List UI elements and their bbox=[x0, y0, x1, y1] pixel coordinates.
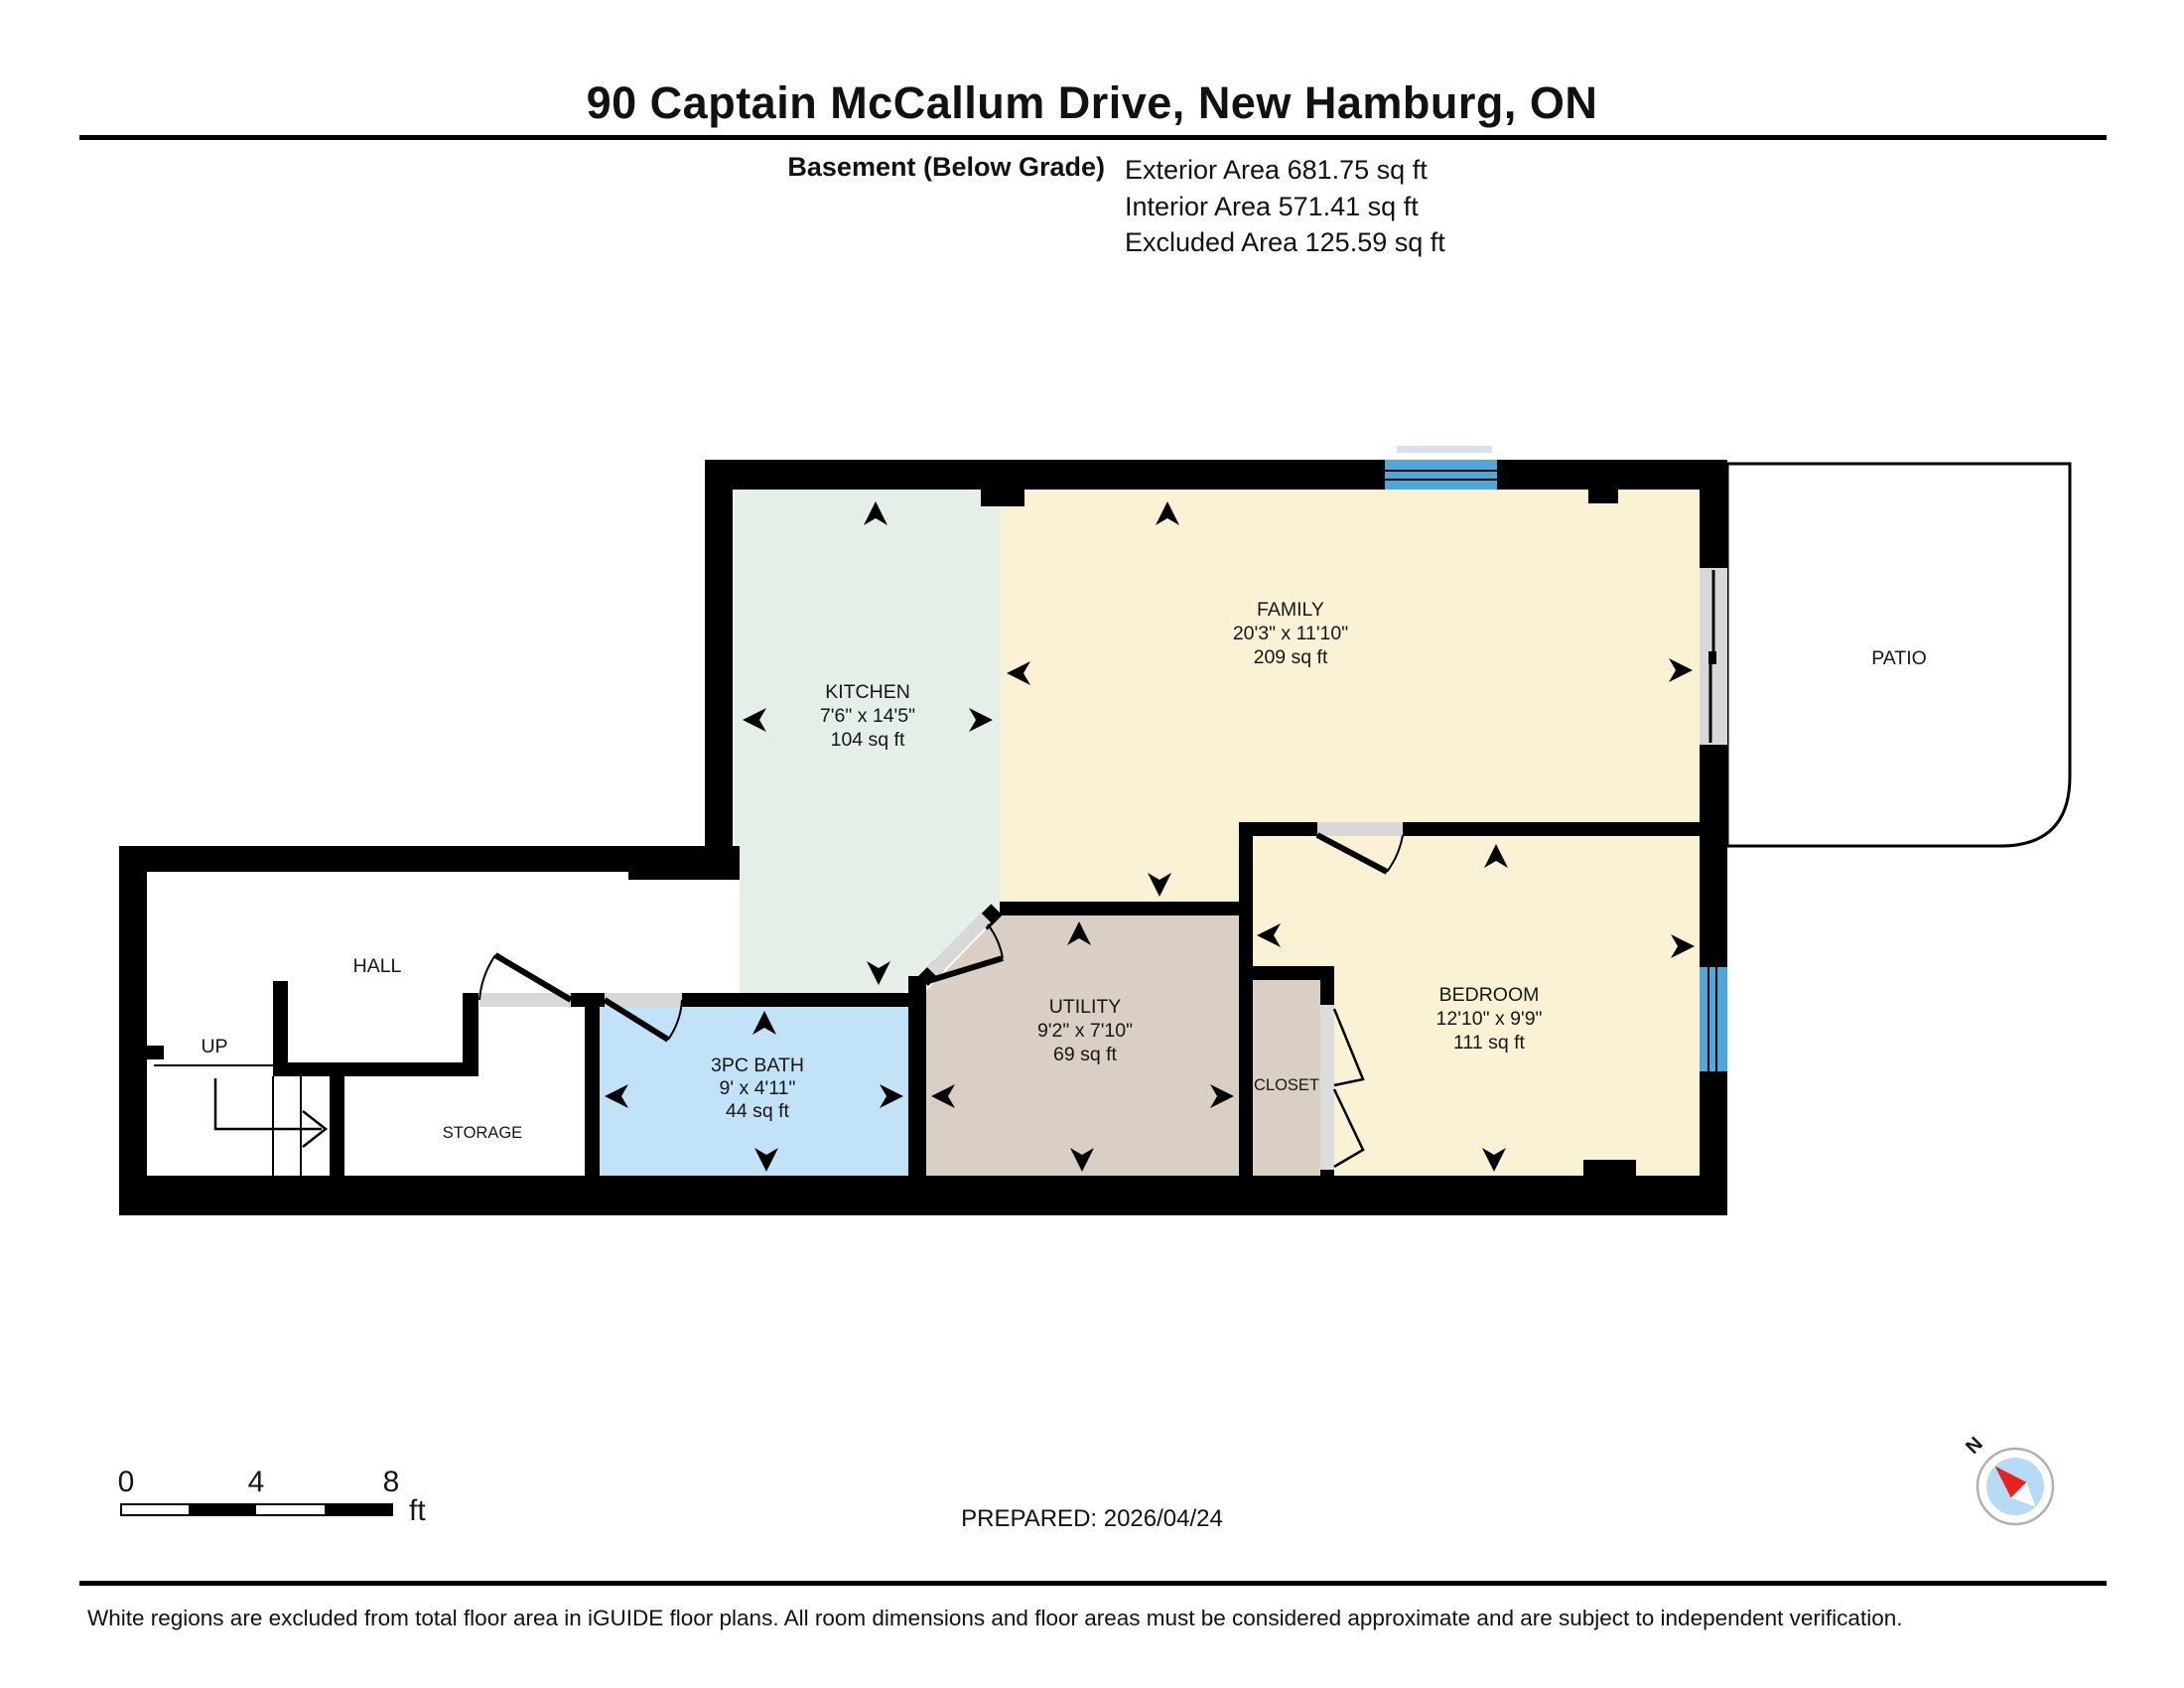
wall-notch bbox=[1583, 1160, 1636, 1176]
family-label: FAMILY bbox=[1257, 599, 1324, 621]
wall-segment bbox=[273, 1062, 478, 1076]
wall-segment bbox=[1320, 1170, 1334, 1178]
wall-segment bbox=[585, 1007, 600, 1176]
utility-label: UTILITY bbox=[1049, 996, 1122, 1018]
patio-label: PATIO bbox=[1871, 647, 1927, 669]
wall-segment bbox=[1239, 822, 1253, 1176]
closet-label: CLOSET bbox=[1254, 1076, 1319, 1094]
family-dimensions: 20'3" x 11'10" bbox=[1233, 623, 1348, 644]
kitchen-area: 104 sq ft bbox=[831, 729, 905, 751]
kitchen-label: KITCHEN bbox=[825, 681, 910, 703]
scale-tick-0: 0 bbox=[118, 1466, 135, 1498]
bath-area: 44 sq ft bbox=[726, 1100, 790, 1122]
window-top-icon bbox=[1385, 460, 1497, 490]
window-bedroom-icon bbox=[1700, 967, 1727, 1071]
closet-bifold-opening bbox=[1320, 1005, 1334, 1170]
bedroom-door-opening bbox=[1317, 822, 1403, 836]
stair-direction-line bbox=[215, 1078, 322, 1129]
wall-segment bbox=[1320, 966, 1334, 1005]
slider-latch bbox=[1708, 651, 1716, 664]
wall-segment bbox=[571, 993, 605, 1007]
wall-segment bbox=[1000, 902, 1239, 915]
stair-treads bbox=[273, 1076, 301, 1176]
kitchen-dimensions: 7'6" x 14'5" bbox=[820, 705, 915, 727]
window-sill bbox=[1397, 446, 1492, 453]
hall-label: HALL bbox=[353, 955, 402, 977]
wall-segment bbox=[1253, 966, 1320, 980]
utility-area: 69 sq ft bbox=[1053, 1044, 1118, 1065]
bedroom-label: BEDROOM bbox=[1439, 984, 1540, 1006]
scale-tick-4: 4 bbox=[248, 1466, 265, 1498]
wall-notch bbox=[1588, 490, 1618, 503]
compass-north-label: N bbox=[1962, 1433, 1987, 1459]
bedroom-dimensions: 12'10" x 9'9" bbox=[1436, 1008, 1543, 1030]
wall-segment bbox=[682, 993, 926, 1007]
wall-segment bbox=[628, 868, 740, 880]
wall-segment bbox=[705, 460, 1727, 490]
wall-segment bbox=[119, 846, 147, 1215]
footer-disclaimer: White regions are excluded from total fl… bbox=[87, 1606, 2073, 1631]
family-area: 209 sq ft bbox=[1254, 646, 1328, 668]
sliding-door-icon bbox=[1700, 568, 1727, 745]
wall-segment bbox=[1403, 822, 1700, 836]
wall-segment bbox=[908, 976, 926, 1176]
wall-segment bbox=[147, 1046, 164, 1059]
storage-label: STORAGE bbox=[443, 1124, 522, 1142]
wall-segment bbox=[119, 1176, 1727, 1215]
wall-segment bbox=[330, 1076, 344, 1176]
wall-segment bbox=[705, 460, 733, 874]
floor-plan-drawing: KITCHEN 7'6" x 14'5" 104 sq ft FAMILY 20… bbox=[0, 0, 2184, 1688]
bath-dimensions: 9' x 4'11" bbox=[720, 1077, 796, 1099]
prepared-date: PREPARED: 2026/04/24 bbox=[0, 1505, 2184, 1533]
scale-tick-8: 8 bbox=[383, 1466, 400, 1498]
up-label: UP bbox=[201, 1036, 227, 1057]
bath-label: 3PC BATH bbox=[711, 1055, 804, 1076]
wall-notch bbox=[981, 490, 1024, 506]
floor-plan-page: 90 Captain McCallum Drive, New Hamburg, … bbox=[0, 0, 2184, 1688]
staircase bbox=[154, 1065, 326, 1176]
utility-dimensions: 9'2" x 7'10" bbox=[1037, 1020, 1133, 1042]
footer-divider bbox=[79, 1581, 2107, 1586]
bedroom-area: 111 sq ft bbox=[1453, 1032, 1525, 1054]
wall-segment bbox=[273, 981, 288, 1076]
